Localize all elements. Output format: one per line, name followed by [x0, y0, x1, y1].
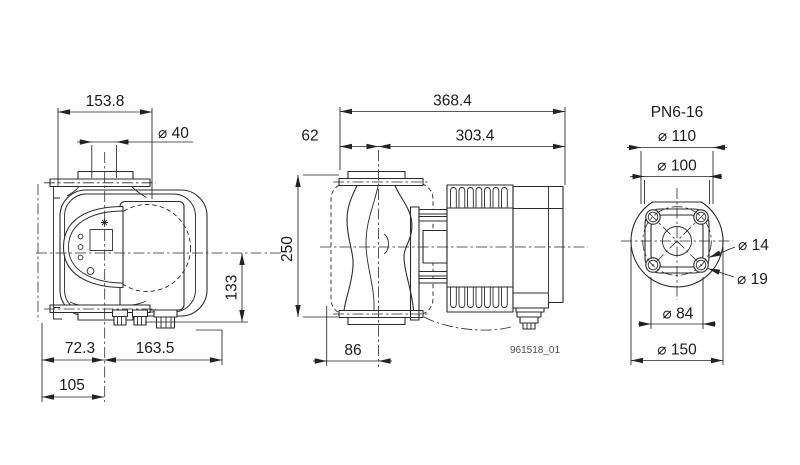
technical-drawing-canvas: 153.8 ⌀ 40 133 72.3 163.5 105 [0, 0, 800, 465]
flange-view: PN6-16 ⌀ 110 ⌀ 100 ⌀ 14 [621, 104, 769, 365]
dim-label-62: 62 [301, 128, 318, 145]
dim-slot-leader: ⌀ 19 [708, 269, 768, 289]
dim-body-length: 303.4 [379, 128, 566, 147]
dim-label-105: 105 [59, 377, 85, 394]
dim-label-303-4: 303.4 [456, 128, 495, 145]
cable-glands [113, 310, 178, 328]
dim-label-133: 133 [224, 275, 241, 301]
dim-label-250: 250 [279, 236, 296, 262]
volute-inner-line [366, 186, 378, 310]
dim-base: 105 [42, 377, 104, 397]
pressure-rating-title: PN6-16 [651, 104, 704, 121]
volute-left-wall [344, 186, 357, 311]
motor-body [447, 185, 513, 312]
dim-label-86: 86 [344, 342, 361, 359]
dim-label-d40: ⌀ 40 [158, 125, 189, 142]
dim-d100: ⌀ 100 [630, 158, 722, 205]
dim-label-d84: ⌀ 84 [663, 306, 694, 323]
dim-label-d19: ⌀ 19 [737, 271, 768, 288]
cable-gland-side [517, 312, 541, 329]
dim-label-d100: ⌀ 100 [657, 158, 697, 175]
dim-port-to-port: 250 [279, 175, 339, 317]
dim-label-d14: ⌀ 14 [738, 237, 769, 254]
insulation-shell-hidden-outline [331, 183, 433, 315]
dim-port-diameter: ⌀ 40 [77, 125, 193, 178]
pump-dimension-drawing: 153.8 ⌀ 40 133 72.3 163.5 105 [0, 0, 800, 465]
hidden-cable-route [424, 317, 514, 330]
drawing-number: 961518_01 [510, 345, 560, 356]
side-view: 368.4 62 303.4 250 86 961518_01 [279, 93, 588, 368]
dim-label-72-3: 72.3 [65, 340, 95, 357]
dim-label-d150: ⌀ 150 [657, 342, 697, 359]
flange-studs [419, 210, 447, 284]
dim-label-163-5: 163.5 [136, 340, 175, 357]
front-view: 153.8 ⌀ 40 133 72.3 163.5 105 [36, 93, 281, 402]
terminal-box-front [120, 202, 184, 311]
terminal-box-side [513, 187, 563, 313]
volute-detail-arc [384, 234, 389, 254]
top-flange-side [339, 172, 423, 186]
dim-label-d110: ⌀ 110 [658, 128, 697, 145]
dim-label-153-8: 153.8 [86, 93, 125, 110]
dim-label-368-4: 368.4 [433, 93, 472, 110]
dim-bottom-right: 163.5 [104, 340, 222, 360]
